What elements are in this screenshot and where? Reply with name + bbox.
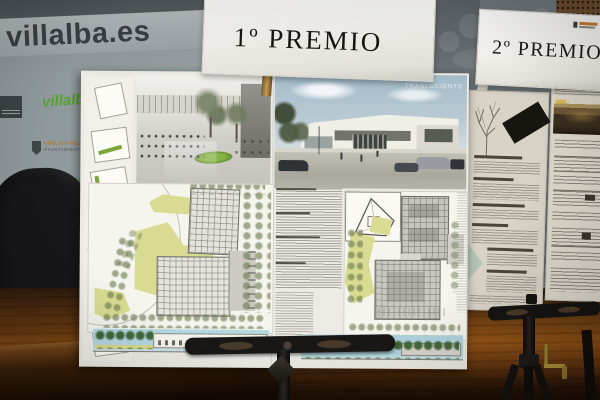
car — [394, 163, 418, 172]
exterior-render: TRASLUCIENTE — [274, 74, 467, 189]
panel-title-text — [554, 91, 600, 98]
car — [278, 160, 308, 171]
glow — [561, 108, 600, 125]
sign-corner-logo — [573, 21, 599, 30]
heading-line — [487, 269, 527, 273]
paragraph-text — [473, 183, 539, 201]
section-drawing — [550, 267, 600, 293]
highlight — [556, 100, 566, 104]
crossbar-bolt — [283, 341, 292, 350]
crossbar-slot — [506, 309, 528, 316]
collado-logo-line2: AYUNTAMIENTO — [44, 148, 84, 152]
roof-detail — [409, 204, 439, 218]
logo-line — [579, 26, 595, 29]
first-prize-text: 1º PREMIO — [233, 22, 383, 58]
pedestrian — [360, 155, 362, 162]
black-rectangle-graphic — [502, 102, 550, 144]
crossbar-slot — [219, 342, 253, 351]
heading-line — [487, 247, 533, 251]
roof-detail — [409, 228, 439, 242]
logo-mark — [573, 22, 577, 28]
margin-notes — [456, 192, 467, 312]
green-bar — [98, 145, 122, 155]
pedestrian — [340, 152, 342, 159]
paragraph-text — [474, 161, 540, 175]
interior-render-amber — [553, 98, 600, 136]
heading-line — [276, 262, 306, 264]
tree-column — [240, 191, 271, 313]
heading-line — [474, 177, 514, 181]
description-text — [276, 188, 343, 288]
detail — [2, 110, 20, 116]
site-plan-left — [87, 183, 274, 334]
prize-board-first: TRASLUCIENTE — [79, 71, 469, 370]
section-drawing — [554, 156, 600, 174]
elevation-trees — [95, 329, 153, 349]
section-drawing — [554, 140, 600, 152]
section-drawing — [551, 228, 600, 249]
tree-column — [346, 228, 363, 304]
crossbar-slot — [558, 306, 580, 313]
cloud — [289, 80, 359, 100]
paragraph-text — [472, 209, 538, 221]
dark-element — [582, 232, 591, 239]
side-opening — [425, 129, 453, 142]
heading-line — [276, 188, 316, 190]
easel-right-top-knob — [526, 294, 537, 304]
board2-panel-left — [462, 90, 549, 312]
website-text: villalba.es — [6, 15, 151, 54]
interior-render — [136, 75, 271, 184]
green-area — [370, 216, 393, 235]
motto-text: TRASLUCIENTE — [405, 83, 463, 90]
partial-logo — [0, 96, 22, 118]
press-photo-scene: villalba.es villalba COLLADO VILLALBA AY… — [0, 0, 600, 400]
parking-lines — [378, 308, 448, 316]
crank-grip — [562, 366, 567, 379]
tree-row — [102, 312, 264, 329]
building-roof — [188, 188, 241, 256]
axon-diagram-green — [91, 127, 131, 163]
sign-first-prize: 1º PREMIO — [201, 0, 436, 82]
floor-light — [164, 141, 216, 183]
prize-board-second — [462, 82, 600, 312]
crank-handle — [540, 342, 600, 394]
pedestrian — [376, 151, 378, 157]
heading-line — [276, 236, 320, 238]
site-plan-right — [343, 190, 468, 341]
heading-line — [473, 203, 525, 208]
paragraph-text — [487, 253, 537, 267]
crowd-figures — [232, 136, 268, 158]
crossbar-slot — [317, 340, 351, 349]
street-tree — [292, 118, 308, 152]
section-drawing — [551, 252, 600, 264]
paragraph-text — [486, 275, 536, 293]
car — [416, 157, 450, 169]
lamp-post — [318, 126, 319, 154]
second-prize-text: 2º PREMIO — [491, 36, 600, 65]
winter-tree-sketch — [470, 97, 504, 160]
heading-line — [276, 212, 310, 214]
paragraph-text — [472, 229, 538, 245]
crank-rod — [544, 344, 548, 366]
dark-element — [585, 195, 595, 201]
axon-diagram — [94, 82, 128, 119]
courtyard-tree — [225, 100, 251, 140]
easel-right-leg — [524, 366, 533, 400]
section-drawing — [553, 176, 600, 186]
board2-panel-right — [545, 84, 600, 302]
car — [450, 159, 464, 169]
tree-trunk — [210, 118, 212, 138]
roof-detail — [386, 272, 424, 302]
sign-second-prize: 2º PREMIO — [475, 9, 600, 92]
building-roof — [156, 256, 230, 317]
crest-icon — [32, 141, 41, 155]
section-drawing — [552, 212, 600, 224]
heading-line — [472, 223, 508, 227]
